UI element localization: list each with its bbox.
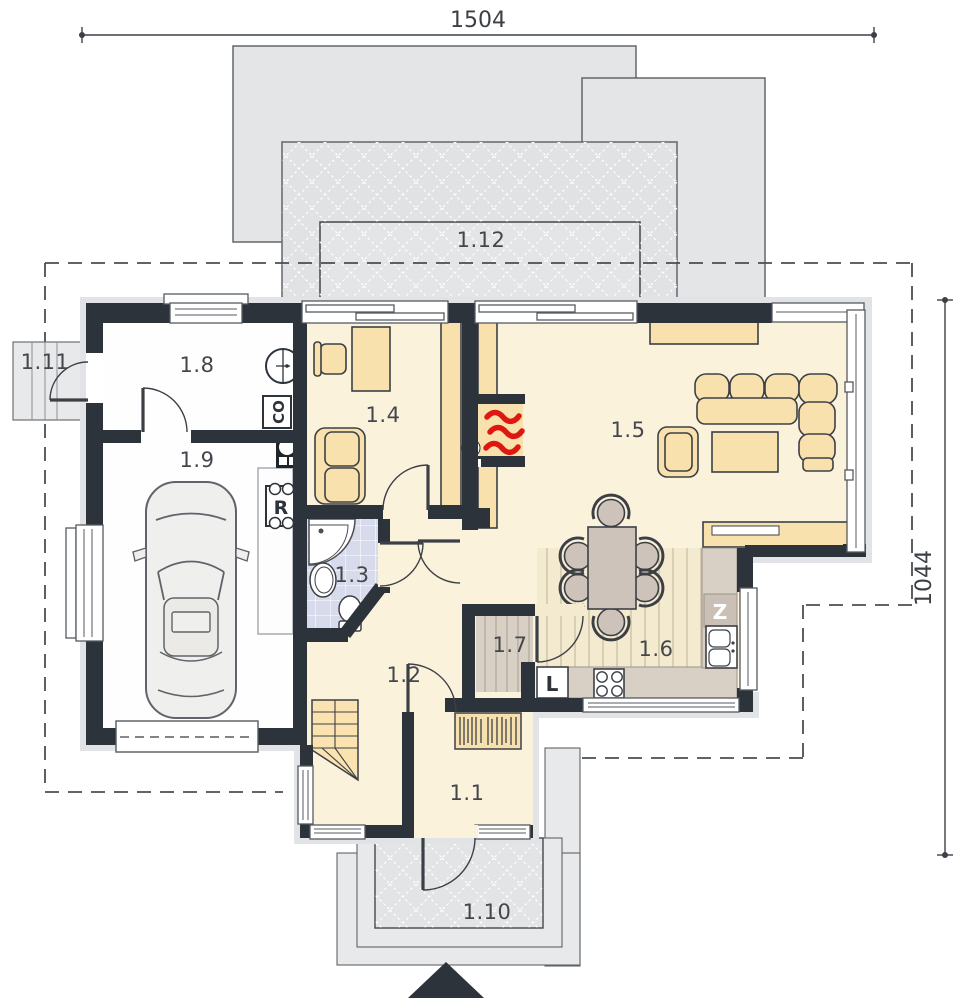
marker-r-label: R [274,497,289,519]
coffee-table [712,432,778,472]
room-label-1-2: 1.2 [387,663,422,687]
dimension-right-label: 1044 [912,550,937,606]
floor-plan-svg: 1504 1044 1.1 1.2 1.3 1.4 1.5 1.6 1.7 1.… [0,0,959,1000]
room-label-1-4: 1.4 [366,403,401,427]
room-label-1-1: 1.1 [450,781,485,805]
room-label-1-9: 1.9 [180,448,215,472]
car [133,482,249,718]
stove [594,669,624,698]
terrace-slider-1-5 [475,301,637,323]
marker-l-label: L [546,672,559,696]
window-garage-west [66,525,103,641]
marker-co-label: CO [270,400,288,424]
room-label-1-7: 1.7 [493,633,528,657]
bathroom-sink [310,563,336,597]
desk [352,327,390,391]
room-label-1-11: 1.11 [21,350,70,374]
room-label-1-5: 1.5 [611,418,646,442]
marker-z-label: Z [713,600,728,624]
sideboard [650,322,758,344]
entrance-arrow-icon [408,962,484,998]
window-1-2-south [310,825,365,839]
desk-chair [314,342,346,376]
terrace-slider-1-4 [302,301,448,323]
office-sofa [315,428,365,504]
room-label-1-3: 1.3 [335,563,370,587]
window-east-glass-wall [845,310,865,552]
office-wardrobe [441,322,461,506]
dining-table [588,527,636,609]
window-kitchen-east [740,588,757,690]
room-label-1-8: 1.8 [180,353,215,377]
window-1-2-west [298,766,313,824]
terrace-1-12 [282,142,677,302]
kitchen-sink [706,626,737,668]
living-closet-upper [478,322,497,398]
window-kitchen-south [583,698,739,712]
doormat [455,713,521,749]
room-label-1-12: 1.12 [457,228,506,252]
dimension-top-label: 1504 [450,8,506,33]
room-label-1-6: 1.6 [639,637,674,661]
window-1-1-south [475,825,530,839]
window-1-8-north [164,294,248,323]
room-label-1-10: 1.10 [463,900,512,924]
armchair [658,427,698,477]
garage-door [116,721,258,752]
floor-plan-canvas: 1504 1044 1.1 1.2 1.3 1.4 1.5 1.6 1.7 1.… [0,0,959,1000]
tv-sideboard [703,522,851,547]
